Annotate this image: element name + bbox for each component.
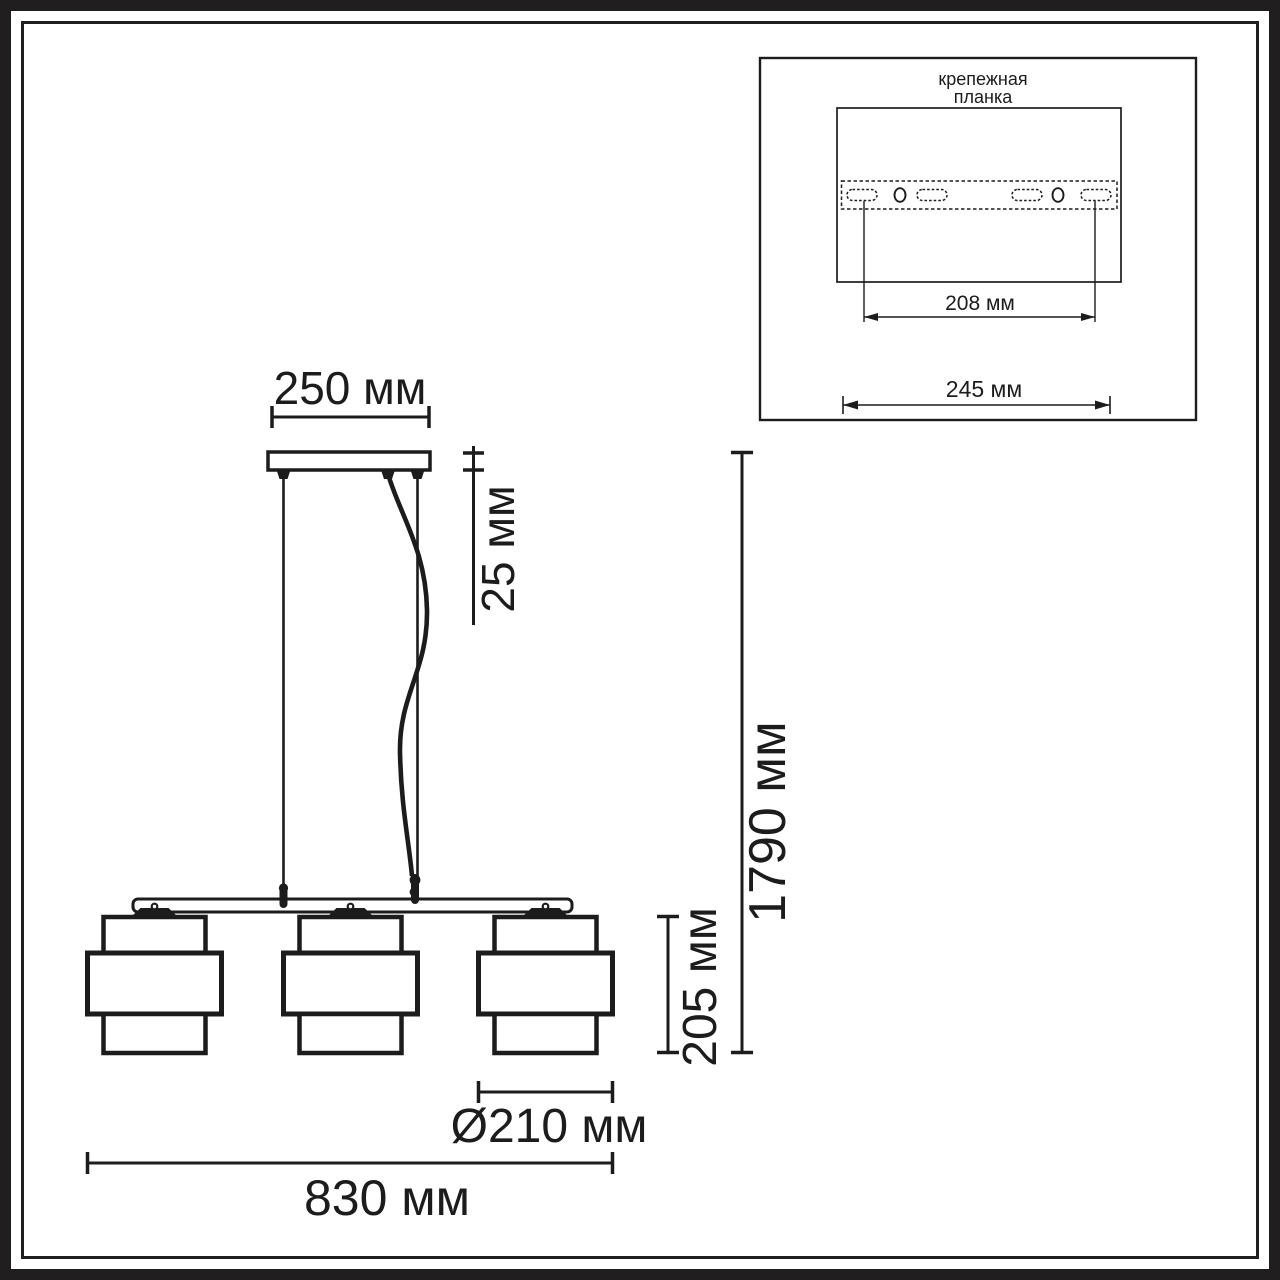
shade-left xyxy=(88,917,222,1053)
mounting-plate-inset: крепежная планка xyxy=(760,58,1196,420)
dim-overall-height: 1790 мм xyxy=(731,452,797,1053)
dim-canopy-width-label: 250 мм xyxy=(274,362,427,414)
canopy-stem-right xyxy=(411,470,425,479)
dim-canopy-height: 25 мм xyxy=(463,446,524,625)
power-wire xyxy=(388,474,427,876)
mounting-plate-body xyxy=(837,108,1121,282)
canopy-stem-left xyxy=(277,470,291,479)
dim-shade-height-label: 205 мм xyxy=(674,907,727,1066)
dim-holes-spacing-label: 208 мм xyxy=(945,292,1015,315)
dim-shade-height: 205 мм xyxy=(657,907,727,1066)
pendant-light-dimension-drawing: 250 мм 25 мм xyxy=(0,0,1280,1280)
dim-overall-length: 830 мм xyxy=(88,1152,613,1226)
canopy xyxy=(268,452,430,479)
shade-right xyxy=(479,917,613,1053)
dim-overall-height-label: 1790 мм xyxy=(739,721,797,923)
suspension-cables xyxy=(284,474,428,888)
dim-canopy-width: 250 мм xyxy=(272,362,429,428)
dim-overall-length-label: 830 мм xyxy=(304,1170,470,1226)
dim-canopy-height-label: 25 мм xyxy=(472,485,524,612)
technical-drawing-page: 250 мм 25 мм xyxy=(0,0,1280,1280)
dim-shade-diameter: Ø210 мм xyxy=(451,1081,648,1153)
dim-plate-width-label: 245 мм xyxy=(946,376,1022,402)
inset-title-line1: крепежная xyxy=(938,69,1027,89)
dim-shade-diameter-label: Ø210 мм xyxy=(451,1100,648,1153)
shade-middle xyxy=(284,917,418,1053)
inset-title-line2: планка xyxy=(954,87,1013,107)
